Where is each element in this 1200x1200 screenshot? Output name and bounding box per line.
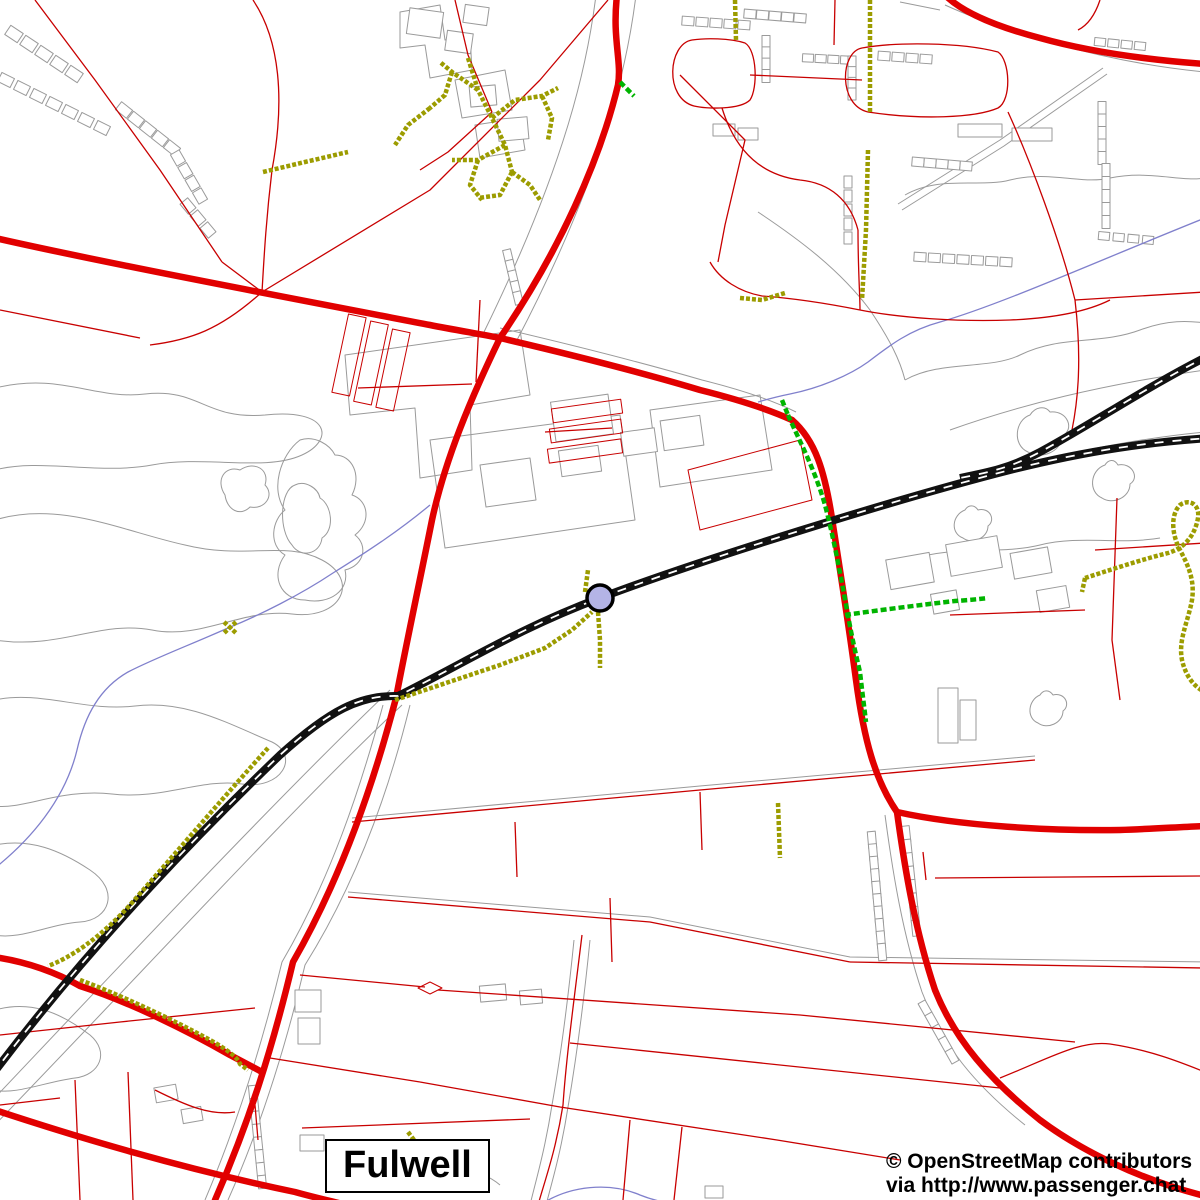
map-canvas[interactable] [0,0,1200,1200]
attribution-line1: © OpenStreetMap contributors [886,1150,1192,1174]
buildings [0,4,1154,1198]
map-viewport[interactable]: Fulwell © OpenStreetMap contributors via… [0,0,1200,1200]
station-marker[interactable] [587,585,613,611]
attribution-line2: via http://www.passenger.chat [886,1174,1192,1198]
place-label: Fulwell [325,1139,490,1193]
cycle-routes [620,82,988,722]
place-label-text: Fulwell [343,1144,472,1186]
map-attribution: © OpenStreetMap contributors via http://… [886,1150,1192,1198]
